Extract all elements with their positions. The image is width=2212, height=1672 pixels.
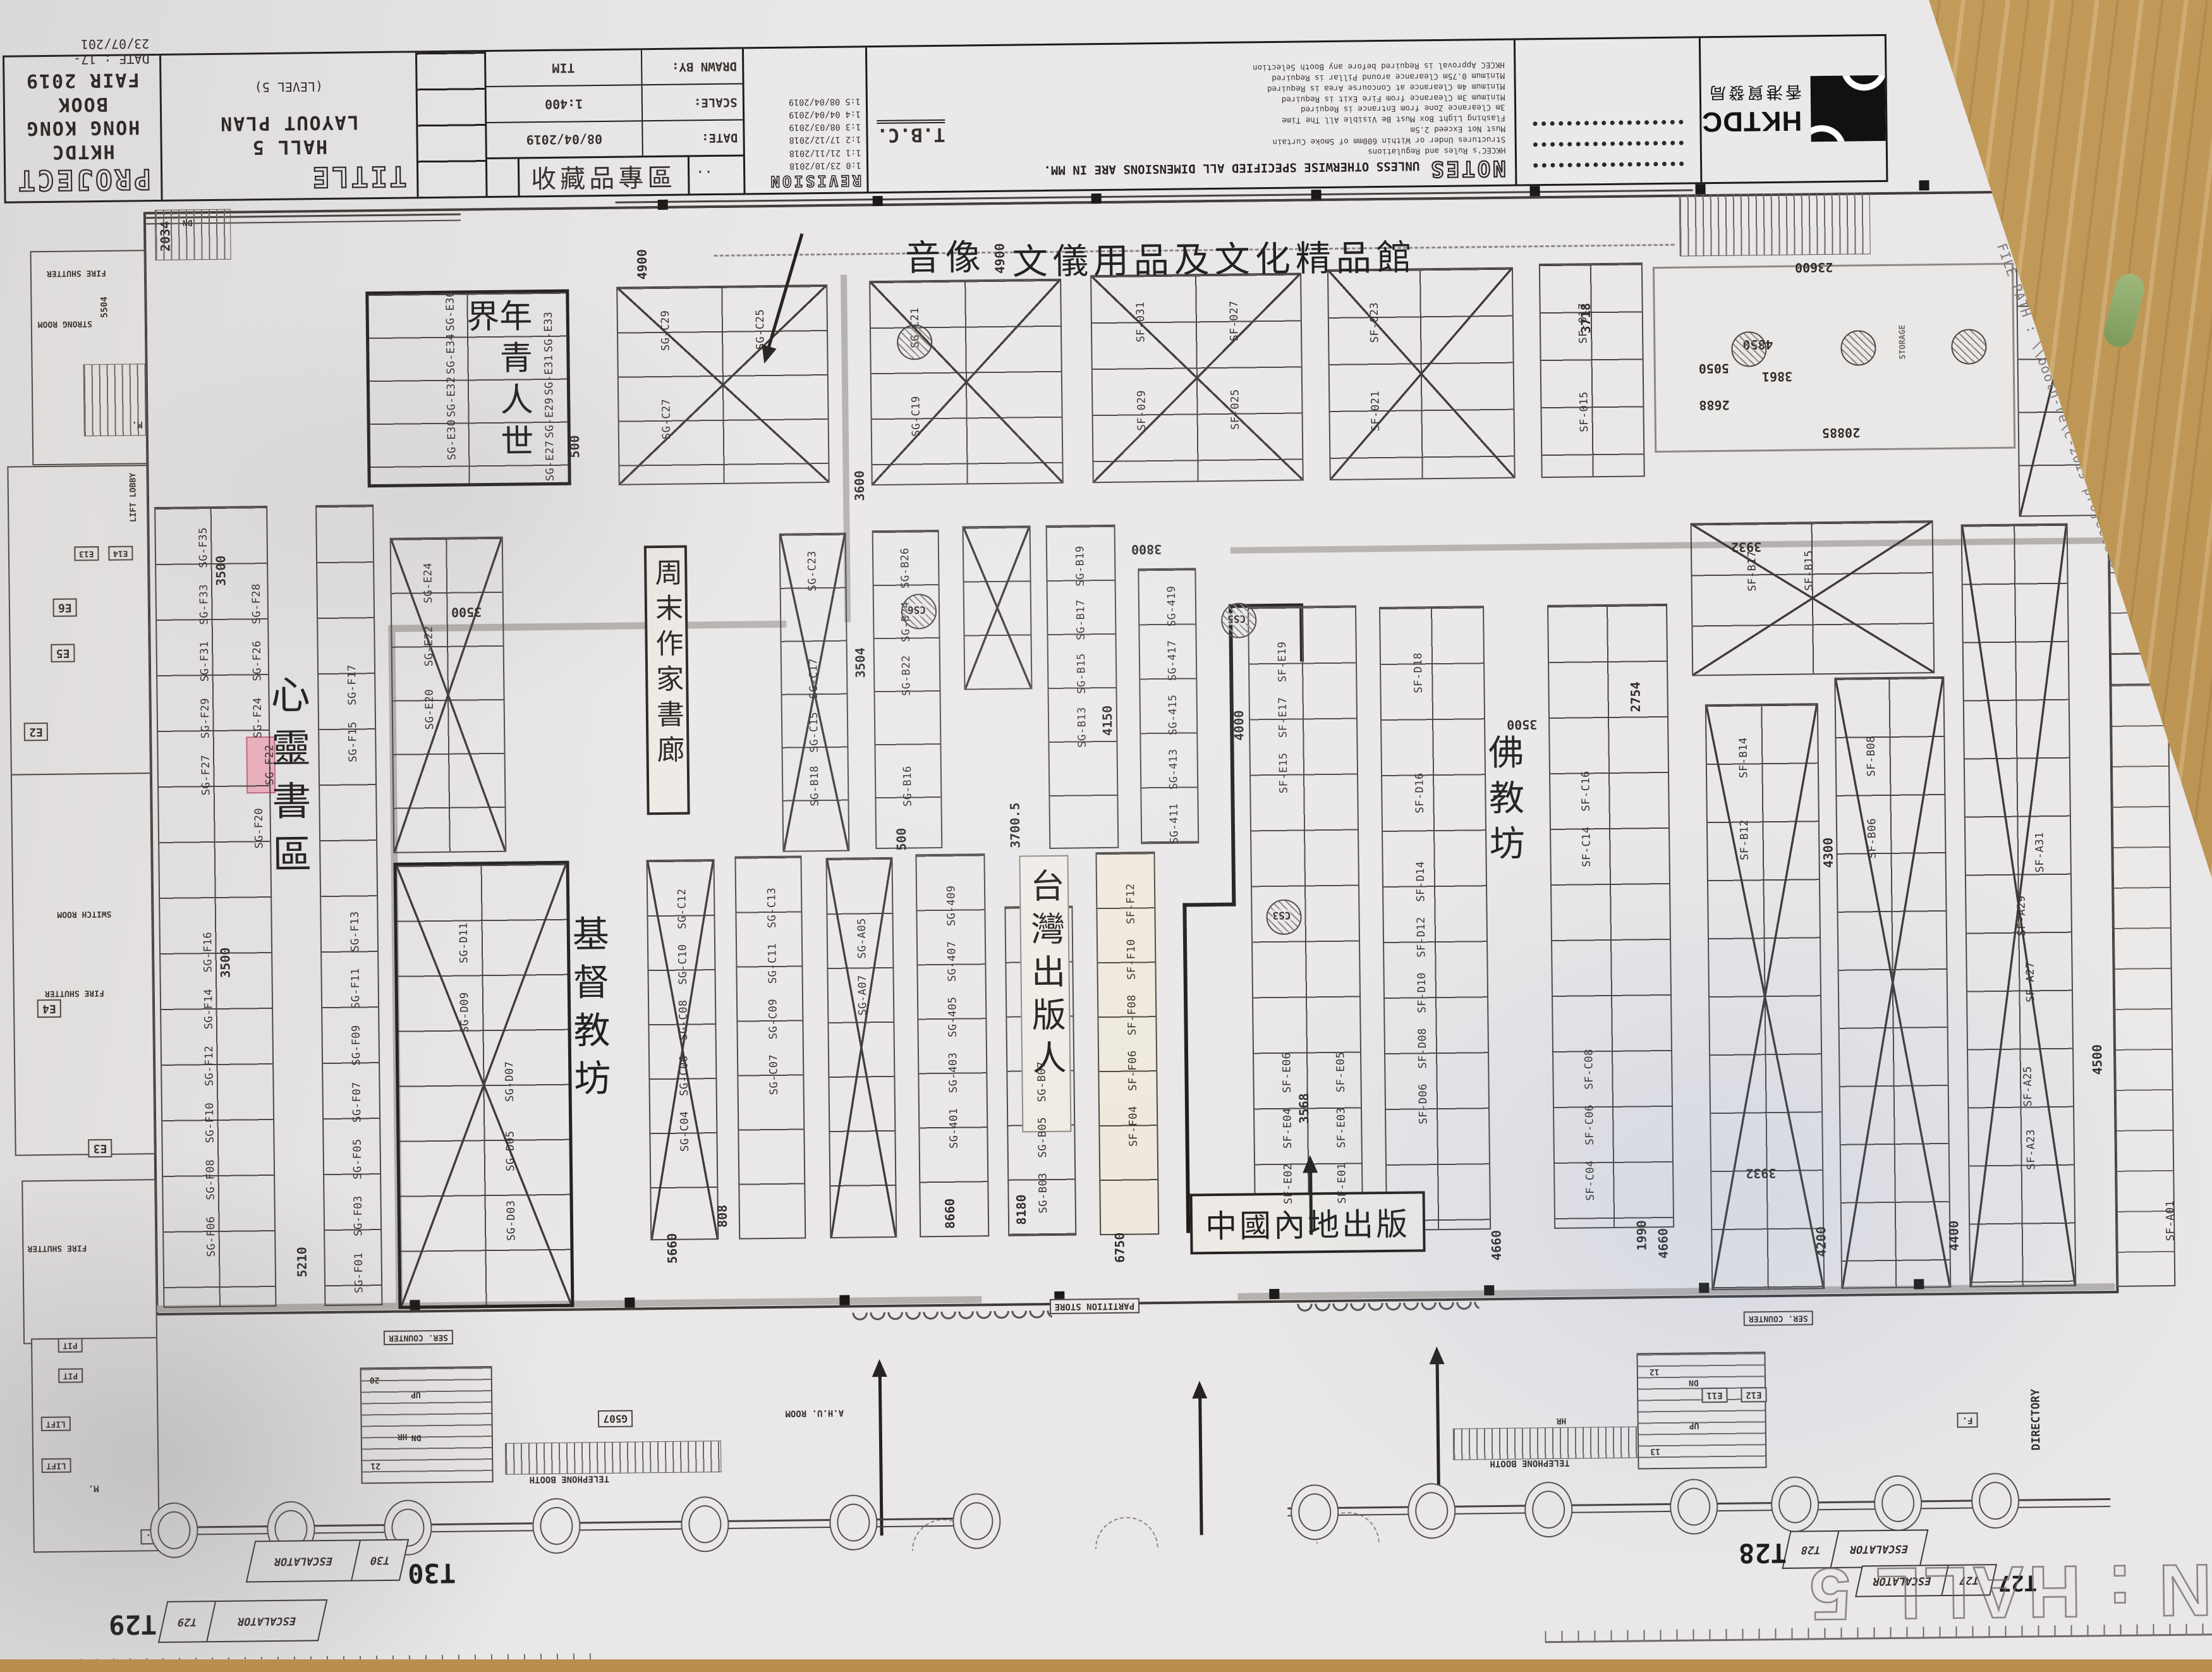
structural-pillar xyxy=(1484,1285,1494,1295)
booth-id: SG-C15 xyxy=(808,712,821,753)
column-symbol xyxy=(1731,331,1767,367)
dimension-label: 23600 xyxy=(1795,260,1833,276)
booth-id: SG-D09 xyxy=(458,992,471,1033)
logo-cell: HKTDC 香港貿發局 xyxy=(1701,36,1887,182)
booth-id: SG-B22 xyxy=(900,655,913,696)
banner-dimension: 4900 xyxy=(992,243,1008,274)
revision-entry: 1:0 23/10/2018 xyxy=(750,159,861,173)
direction-arrow xyxy=(1198,1389,1203,1535)
title-line3: (LEVEL 5) xyxy=(172,78,406,95)
booth-id: SF-B14 xyxy=(1737,737,1751,778)
dimension-label: 2688 xyxy=(1699,398,1729,413)
plan-label: A.H.U. ROOM xyxy=(785,1408,844,1419)
booth-ids-layer: SG-E36SG-E34SG-E32SG-E30SG-E33SG-E31SG-E… xyxy=(0,0,2203,13)
booth-block xyxy=(1547,604,1674,1229)
round-column xyxy=(1971,1473,2020,1529)
revision-entry: 1:2 17/12/2018 xyxy=(750,133,861,147)
booth-id: SG-F08 xyxy=(204,1159,217,1200)
structural-pillar xyxy=(1311,190,1322,200)
plan-label: HR xyxy=(398,1432,408,1441)
plan-label: E11 xyxy=(1701,1388,1728,1403)
round-column xyxy=(1407,1483,1456,1539)
project-name1: HKTDC xyxy=(16,139,151,164)
structural-pillar xyxy=(658,200,668,210)
notes-heading: NOTES xyxy=(1428,156,1506,181)
booth-id: SG-B05 xyxy=(1036,1117,1049,1158)
booth-id: SF-E05 xyxy=(1334,1051,1347,1092)
plan-label: TELEPHONE BOOTH xyxy=(1490,1458,1570,1468)
booth-id: SF-F06 xyxy=(1126,1050,1139,1091)
booth-id: SG-417 xyxy=(1166,640,1179,681)
booth-id: SG-C25 xyxy=(754,309,767,350)
round-column xyxy=(1874,1475,1923,1531)
plan-shape xyxy=(21,1179,157,1344)
booth-id: SG-F20 xyxy=(253,808,266,849)
floorplan-sheet: HKTDC 香港貿發局 NOTES UNLESS OTHERWISE SPECI… xyxy=(0,0,2212,1672)
banner-audio-visual: 音像 xyxy=(904,229,986,281)
round-column xyxy=(681,1496,729,1553)
booth-id: SG-B17 xyxy=(1074,599,1088,640)
dimension-label: 8660 xyxy=(942,1199,958,1229)
column-id: CS5 xyxy=(1227,613,1246,625)
plan-label: DIRECTORY xyxy=(2029,1389,2043,1451)
booth-id: SF-B08 xyxy=(1865,736,1878,777)
structural-pillar xyxy=(1529,186,1540,196)
zone-label: 心靈書區 xyxy=(266,674,308,910)
dimension-label: 20885 xyxy=(1822,425,1860,441)
dimension-label: 2034 xyxy=(157,221,173,252)
booth-id: SG-B18 xyxy=(808,766,822,807)
round-column xyxy=(952,1493,1001,1549)
dimension-label: 4660 xyxy=(1488,1230,1504,1260)
booth-id: SF-F12 xyxy=(1124,883,1138,924)
notes-subheading: UNLESS OTHERWISE SPECIFIED ALL DIMENSION… xyxy=(1043,159,1419,177)
plan-label: UP xyxy=(411,1389,421,1399)
plan-label: DN xyxy=(411,1432,422,1442)
booth-id: SG-E24 xyxy=(422,563,435,604)
escalator-group: ESCALATOR T28 xyxy=(0,0,2203,13)
booth-id: SF-D10 xyxy=(1416,972,1429,1013)
title-block: HKTDC 香港貿發局 NOTES UNLESS OTHERWISE SPECI… xyxy=(3,34,1888,204)
dimension-label: 3932 xyxy=(1731,539,1761,555)
plan-label: E12 xyxy=(1741,1387,1767,1402)
booth-block xyxy=(390,537,507,853)
structural-pillar xyxy=(1919,180,1929,190)
booth-block xyxy=(869,279,1064,485)
booth-id: SG-F17 xyxy=(346,664,359,705)
booth-id: SF-031 xyxy=(1134,302,1148,343)
booth-id: SG-403 xyxy=(947,1052,960,1093)
booth-id: SG-E20 xyxy=(423,689,437,730)
booth-id: SF-F04 xyxy=(1127,1106,1140,1147)
dotted-line xyxy=(1533,162,1684,168)
booth-id: SF-F08 xyxy=(1126,994,1139,1035)
escalator-word: ESCALATOR xyxy=(236,1614,298,1628)
project-label: PROJECT xyxy=(16,162,151,196)
dimension-label: 500 xyxy=(567,435,582,458)
plan-label: UP xyxy=(1689,1420,1699,1430)
booth-id: SG-C09 xyxy=(767,999,780,1040)
meta-row: SCALE: 1:400 xyxy=(486,83,743,122)
floorplan-paper: HKTDC 香港貿發局 NOTES UNLESS OTHERWISE SPECI… xyxy=(0,0,2212,1659)
meta-label: SCALE: xyxy=(641,85,743,120)
meta-value: TIM xyxy=(486,59,641,76)
booth-id: SF-D12 xyxy=(1415,917,1428,958)
structural-pillar xyxy=(410,1300,420,1310)
room-label: E2 xyxy=(24,723,48,741)
booth-id: SG-C13 xyxy=(765,888,779,929)
meta-table: DATE: 08/04/2019 SCALE: 1:400 DRAWN BY: xyxy=(486,49,743,157)
logo-chinese: 香港貿發局 xyxy=(1701,82,1802,106)
booth-id: SF-A27 xyxy=(2024,961,2038,1003)
project-name2: HONG KONG BOOK xyxy=(15,92,150,140)
dimension-label: 4150 xyxy=(1100,705,1115,736)
column-id: CS3 xyxy=(1272,910,1291,922)
escalator-word-cell: ESCALATOR xyxy=(206,1601,326,1641)
revision-entry: 1:1 21/11/2018 xyxy=(750,146,861,160)
plan-shape xyxy=(2110,683,2175,1287)
plan-label: DN xyxy=(183,217,193,227)
escalator-tag-t29: T29 xyxy=(109,1609,157,1640)
room-label: E4 xyxy=(37,999,61,1018)
location-watermark: LOCATION : HALL 5 xyxy=(1806,1544,2212,1637)
booth-id: SG-E29 xyxy=(543,398,556,439)
booth-id: SG-F12 xyxy=(203,1046,216,1087)
column-symbol xyxy=(1951,329,1987,365)
structural-pillar xyxy=(1914,1279,1924,1289)
booth-id: SG-C27 xyxy=(660,399,673,440)
meta-value: 1:400 xyxy=(487,95,641,113)
zone-label: 基督教坊 xyxy=(568,915,607,1128)
escalator-box: ESCALATOR T30 xyxy=(246,1539,409,1583)
room-label: LIFT LOBBY xyxy=(128,473,138,522)
title-line1: HALL 5 xyxy=(173,133,406,160)
column-id: CS6 xyxy=(908,604,926,616)
booth-block xyxy=(1539,262,1645,478)
notes-cell: NOTES UNLESS OTHERWISE SPECIFIED ALL DIM… xyxy=(867,40,1517,192)
booth-id: SF-B17 xyxy=(1746,551,1759,592)
booth-id: SG-F13 xyxy=(349,911,362,952)
direction-arrow xyxy=(878,1368,884,1535)
dimension-label: 6750 xyxy=(1112,1233,1127,1263)
booth-id: SF-C08 xyxy=(1583,1049,1596,1090)
logo-text: HKTDC xyxy=(1701,105,1802,138)
booth-id: SG-E27 xyxy=(544,441,557,482)
booth-id: SF-C06 xyxy=(1583,1104,1596,1145)
booth-id: SF-C14 xyxy=(1580,826,1593,867)
plan-label: 21 xyxy=(370,1461,380,1470)
booth-id: SG-B26 xyxy=(899,547,912,589)
dimension-label: 3718 xyxy=(1578,303,1594,333)
booth-id: SG-C04 xyxy=(678,1111,691,1152)
booth-id: SG-F06 xyxy=(205,1216,218,1257)
dimension-label: 4200 xyxy=(1813,1226,1829,1257)
plan-label: 12 xyxy=(1650,1367,1660,1376)
booth-id: SG-F11 xyxy=(349,968,363,1009)
plan-shape xyxy=(11,772,155,1156)
round-column xyxy=(532,1498,581,1554)
booth-id: SG-E36 xyxy=(444,290,457,331)
room-label: E13 xyxy=(74,546,99,561)
plan-line xyxy=(1095,1516,1158,1580)
plan-shape xyxy=(505,1441,722,1475)
plan-label: PARTITION STORE xyxy=(1049,1298,1139,1314)
escalator-tag-t28: T28 xyxy=(1739,1537,1787,1569)
plan-lines-layer xyxy=(0,0,2203,13)
plan-label: DN xyxy=(1689,1377,1699,1387)
escalator-box: ESCALATOR T29 xyxy=(158,1599,327,1643)
booth-id: SF-E06 xyxy=(1280,1052,1294,1093)
cs-columns-layer: CS6 CS5 CS3 xyxy=(0,0,2203,13)
room-label: SWITCH ROOM xyxy=(54,909,114,919)
dimension-label: 4400 xyxy=(1946,1221,1962,1251)
plan-label: G507 xyxy=(598,1410,633,1428)
dimension-label: 4300 xyxy=(1820,838,1836,868)
booth-id: SG-D03 xyxy=(505,1200,518,1241)
dimension-label: 3500 xyxy=(451,604,482,620)
dimensions-layer: 35005003500350052104900360038003700.5500… xyxy=(0,0,2203,13)
booth-id: SG-413 xyxy=(1167,748,1181,790)
booth-id: SG-A05 xyxy=(856,918,869,959)
booth-id: SF-B12 xyxy=(1738,819,1751,860)
booth-id: SG-F27 xyxy=(200,755,213,796)
booth-id: SG-B15 xyxy=(1075,653,1088,694)
room-label: E6 xyxy=(53,598,77,616)
round-column xyxy=(1524,1482,1573,1538)
booth-id: SF-D16 xyxy=(1413,772,1426,814)
room-label: FIRE SHUTTER xyxy=(27,1243,87,1253)
booth-id: SF-E04 xyxy=(1281,1108,1294,1149)
structural-pillar xyxy=(1699,1283,1709,1293)
dimension-label: 4900 xyxy=(635,249,650,279)
booth-id: SG-F15 xyxy=(346,721,360,762)
escalator-id: T29 xyxy=(176,1615,198,1628)
booth-id: SG-F14 xyxy=(202,989,216,1030)
booth-id: SG-C19 xyxy=(909,396,923,437)
booth-id: SF-A25 xyxy=(2022,1066,2035,1107)
booth-id: SF-E03 xyxy=(1335,1107,1348,1148)
room-label: E3 xyxy=(88,1139,112,1157)
banner-stationery-hall: 文儀用品及文化精品館 xyxy=(1012,229,1417,284)
booth-id: SG-E32 xyxy=(445,376,458,417)
notes-list: HKCEC's Rules and RegulationsStructures … xyxy=(1253,59,1506,158)
booth-id: SG-B16 xyxy=(901,766,915,807)
signature-cell xyxy=(1515,38,1702,184)
plan-label: 20 xyxy=(370,1375,380,1384)
booth-id: SG-E33 xyxy=(542,312,556,353)
hktdc-logo-icon xyxy=(1811,75,1886,142)
meta-label: DRAWN BY: xyxy=(641,49,743,84)
round-column xyxy=(1670,1479,1718,1535)
booth-id: SG-F10 xyxy=(204,1102,217,1144)
plan-line xyxy=(1182,903,1236,907)
room-label: FIRE SHUTTER xyxy=(47,268,106,278)
booth-id: SG-B19 xyxy=(1074,546,1087,587)
booth-id: SG-F31 xyxy=(198,641,212,682)
booth-id: SF-C16 xyxy=(1579,771,1593,812)
booth-id: SF-025 xyxy=(1229,389,1242,430)
dimension-label: 4660 xyxy=(1655,1228,1671,1259)
photo-scene: HKTDC 香港貿發局 NOTES UNLESS OTHERWISE SPECI… xyxy=(0,0,2212,1659)
round-column xyxy=(1771,1476,1820,1532)
booth-block xyxy=(1705,703,1825,1290)
dimension-label: 8180 xyxy=(1014,1194,1030,1224)
booth-block xyxy=(1090,272,1304,483)
booth-block xyxy=(1691,520,1935,676)
plan-label: SER. COUNTER xyxy=(1744,1310,1813,1326)
dimension-label: 3500 xyxy=(217,948,233,978)
dimension-label: 3800 xyxy=(1131,542,1162,558)
booth-block xyxy=(1327,267,1516,480)
room-label: M. xyxy=(88,1483,99,1493)
dimension-label: 500 xyxy=(894,827,909,850)
check-rows-cell xyxy=(417,52,487,197)
escalator-word-cell: ESCALATOR xyxy=(247,1541,361,1581)
booth-id: SF-023 xyxy=(1368,302,1382,343)
booth-id: SG-B07 xyxy=(1035,1061,1048,1102)
room-label: LIFT xyxy=(41,1458,71,1474)
booth-id: SG-407 xyxy=(945,941,959,982)
booth-id: SF-E01 xyxy=(1335,1162,1349,1204)
booth-id: SG-F07 xyxy=(351,1082,364,1123)
structural-pillar xyxy=(1695,184,1705,194)
dimension-label: 3500 xyxy=(213,556,229,586)
escalator-id: T30 xyxy=(368,1554,391,1566)
dimension-label: 5210 xyxy=(294,1247,310,1277)
booth-id: SG-E30 xyxy=(446,419,459,460)
booth-id: SF-E17 xyxy=(1277,697,1290,738)
booth-id: SG-F01 xyxy=(353,1252,366,1293)
booth-id: SG-F33 xyxy=(198,584,211,625)
booth-id: SF-D06 xyxy=(1417,1083,1430,1125)
booth-id: SF-021 xyxy=(1369,391,1382,432)
booth-id: SG-F09 xyxy=(350,1025,363,1066)
booth-id: SG-C07 xyxy=(767,1054,781,1095)
booth-id: SG-419 xyxy=(1165,585,1179,626)
booth-id: SG-B13 xyxy=(1076,707,1089,748)
booth-id: SG-C12 xyxy=(676,888,689,929)
structural-pillar xyxy=(624,1298,635,1308)
column-symbol: CS6 xyxy=(901,594,937,630)
booth-block xyxy=(963,525,1033,690)
dimension-label: 5050 xyxy=(1699,361,1729,377)
zone-labels-layer: 年青人世界心靈書區周末作家書廊基督教坊台灣出版人佛教坊中國內地出版 xyxy=(0,0,2203,13)
round-column xyxy=(1291,1484,1339,1541)
revision-entry: 1:4 04/04/2019 xyxy=(750,107,861,121)
booth-id: SG-F16 xyxy=(202,932,215,973)
booth-id: SG-F26 xyxy=(251,640,264,681)
meta-label: DATE: xyxy=(641,120,743,156)
booth-block xyxy=(1379,606,1491,1231)
collections-zone-header: 收藏品專區 xyxy=(518,155,690,197)
booth-id: SG-401 xyxy=(947,1108,961,1149)
dimension-label: 3600 xyxy=(852,470,868,501)
room-label: PIT xyxy=(58,1368,83,1382)
escalator-id-cell: T30 xyxy=(352,1541,408,1580)
booth-id: SF-A31 xyxy=(2033,832,2046,873)
zone-label: 中國內地出版 xyxy=(1190,1191,1426,1254)
revision-entry: 1:5 08/04/2019 xyxy=(750,95,861,109)
dimension-label: 2754 xyxy=(1627,681,1643,712)
dimension-label: 3932 xyxy=(1746,1166,1776,1181)
hall-plan: 音像 4900 文儀用品及文化精品館 年青人世界心靈書區周末作家書廊基督教坊台灣… xyxy=(0,0,2203,13)
booth-id: SG-C29 xyxy=(659,310,672,351)
booth-id: SF-F10 xyxy=(1125,939,1138,980)
booth-id: SG-F35 xyxy=(197,527,210,568)
structural-pillar xyxy=(1091,193,1102,204)
plan-shape xyxy=(31,1337,160,1553)
meta-cell: .. 收藏品專區 DATE: 08/04/2019 SCALE: xyxy=(486,49,745,196)
escalator-group: ESCALATOR T27 xyxy=(0,0,2203,13)
dimension-label: 1990 xyxy=(1634,1220,1650,1250)
booth-id: SG-F28 xyxy=(250,583,264,625)
room-label: LIFT xyxy=(40,1417,71,1432)
meta-value: 08/04/2019 xyxy=(487,131,641,148)
booth-id: SG-E22 xyxy=(422,626,435,667)
title-cell: TITLE HALL 5 LAYOUT PLAN (LEVEL 5) xyxy=(161,52,418,200)
project-name3: FAIR 2019 xyxy=(15,68,150,93)
shapes-layer xyxy=(0,0,2203,13)
booth-block xyxy=(394,861,574,1309)
revision-entry: 1:3 08/03/2019 xyxy=(750,120,861,134)
escalator-group: ESCALATOR T29 xyxy=(0,0,2203,13)
zone-label: 年青人世界 xyxy=(463,298,530,482)
revision-cell: REVISION 1:0 23/10/20181:1 21/11/20181:2… xyxy=(744,47,869,193)
booth-id: SF-E15 xyxy=(1277,752,1291,793)
booth-id: SG-B03 xyxy=(1036,1173,1050,1214)
plan-label: F. xyxy=(1957,1412,1978,1427)
booth-id: SF-A01 xyxy=(2164,1200,2177,1242)
title-line2: LAYOUT PLAN xyxy=(172,109,406,136)
rails-layer xyxy=(0,0,2203,13)
dimension-label: 3700.5 xyxy=(1007,802,1023,848)
project-cell: PROJECT HKTDC HONG KONG BOOK FAIR 2019 D… xyxy=(4,56,163,202)
structural-pillar xyxy=(1269,1289,1279,1299)
escalator-tag-t30: T30 xyxy=(408,1558,456,1589)
booth-id: SG-C08 xyxy=(677,999,690,1040)
room-label: E5 xyxy=(51,644,75,662)
dimension-label: 808 xyxy=(715,1205,730,1228)
dimension-label: 3861 xyxy=(1762,369,1792,385)
booth-id: SF-027 xyxy=(1228,300,1241,341)
dimension-label: 3568 xyxy=(1296,1093,1312,1123)
dimension-label: 5660 xyxy=(664,1233,680,1264)
booth-id: SG-F03 xyxy=(352,1195,365,1236)
tbc-label: T.B.C. xyxy=(877,119,945,146)
booth-id: SG-C23 xyxy=(806,551,819,592)
plan-label: TELEPHONE BOOTH xyxy=(530,1474,610,1484)
booth-id: SG-D07 xyxy=(503,1061,516,1102)
plan-label: 13 xyxy=(1650,1446,1660,1456)
meta-row: DATE: 08/04/2019 xyxy=(487,119,743,157)
booth-id: SG-C17 xyxy=(807,658,820,699)
room-label: E14 xyxy=(108,546,133,560)
booth-id: SF-A23 xyxy=(2025,1129,2038,1170)
booth-id: SF-B15 xyxy=(1802,550,1816,591)
rail-columns-layer xyxy=(0,0,2203,13)
dimension-label: 3504 xyxy=(853,647,868,678)
plan-label: HR xyxy=(1557,1416,1567,1425)
column-symbol xyxy=(897,324,933,360)
plan-line xyxy=(1296,1302,1480,1316)
room-label: STRONG ROOM xyxy=(33,319,97,329)
dimension-label: 3500 xyxy=(1507,717,1537,733)
booth-id: SG-F22 xyxy=(264,745,277,786)
booth-id: SF-029 xyxy=(1135,390,1148,431)
left-rooms-layer: FIRE SHUTTERSTRONG ROOM5504M.LIFT LOBBYE… xyxy=(0,0,2203,13)
dots-prefix: .. xyxy=(696,167,713,183)
booth-id: SF-D08 xyxy=(1416,1028,1430,1069)
